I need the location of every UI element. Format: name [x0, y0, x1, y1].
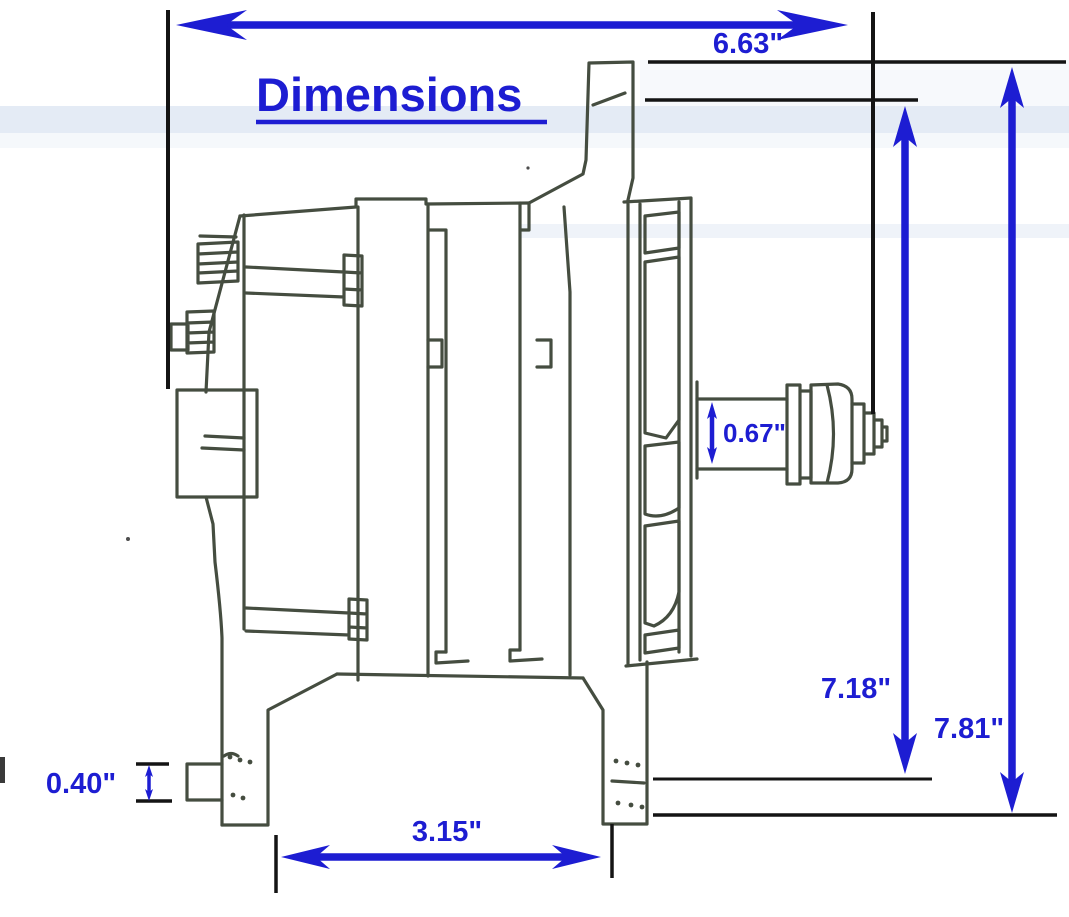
fan-blade: [645, 521, 679, 626]
dim-shaft-shoulder-arrow: [707, 402, 717, 464]
through-bolt-upper: [246, 255, 362, 306]
pulley-nut: [811, 384, 852, 483]
stud-tip-steps: [852, 404, 887, 463]
fan-blade: [645, 212, 679, 253]
stator-column-left: [428, 204, 446, 676]
alternator-dimension-drawing: Dimensions 6.63" 7.18" 7.81" 0.67" 0.40"…: [0, 0, 1069, 917]
extension-lines: [136, 10, 1066, 893]
foot-rivet-dots: [228, 755, 645, 810]
page-title: Dimensions: [256, 68, 522, 121]
scanned-dimension-diagram: Dimensions 6.63" 7.18" 7.81" 0.67" 0.40"…: [0, 0, 1069, 917]
fan-blade: [645, 257, 679, 438]
front-foot: [583, 662, 647, 824]
dim-shaft-shoulder-label: 0.67": [723, 418, 786, 448]
rear-foot: [222, 674, 337, 825]
shaft-washers: [787, 385, 811, 484]
dim-overall-height-label: 7.81": [934, 713, 1004, 745]
rear-lower-edge: [206, 497, 222, 825]
front-foot-dash: [612, 781, 644, 783]
dim-upper-height-label: 7.18": [821, 673, 891, 705]
top-mounting-ear: [529, 62, 633, 203]
dim-upper-height-arrow: [893, 106, 917, 774]
fan-blade: [645, 630, 679, 653]
dimension-arrows: [145, 10, 1024, 869]
terminal-stud-upper: [198, 236, 238, 283]
through-bolt-lower: [246, 599, 367, 640]
front-housing-face: [564, 207, 570, 675]
ear-notch-tick: [593, 93, 625, 105]
dim-overall-length-label: 6.63": [713, 28, 783, 60]
stator-column-right: [520, 203, 529, 650]
fan-blade: [645, 442, 679, 516]
dim-foot-tab-arrow: [145, 765, 153, 801]
rear-foot-tab: [187, 764, 222, 800]
dim-foot-tab-label: 0.40": [46, 768, 116, 800]
dim-foot-spacing-label: 3.15": [412, 816, 482, 848]
dim-overall-height-arrow: [1000, 67, 1024, 813]
housing-top-edge: [240, 199, 529, 216]
bottom-edge: [337, 674, 583, 678]
fan-rails: [624, 198, 697, 666]
scan-specks: [0, 166, 530, 783]
column-feet: [436, 650, 542, 663]
dim-foot-spacing-arrow: [281, 845, 601, 869]
